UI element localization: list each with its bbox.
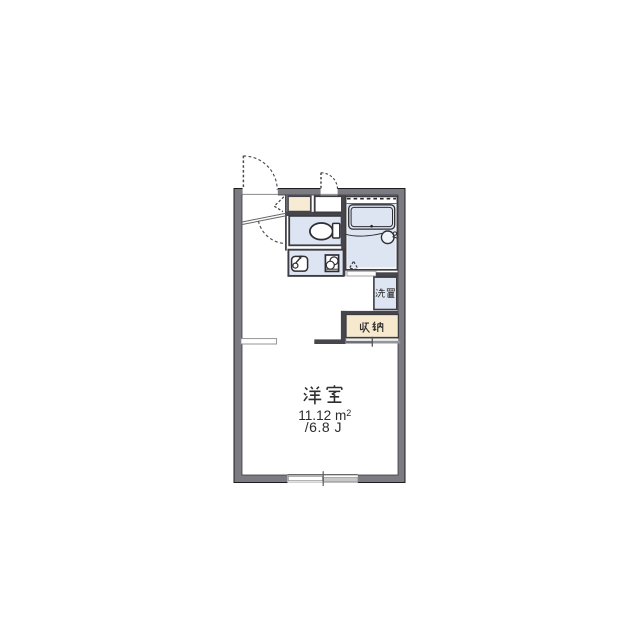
svg-text:/6.8 J: /6.8 J <box>305 419 342 435</box>
